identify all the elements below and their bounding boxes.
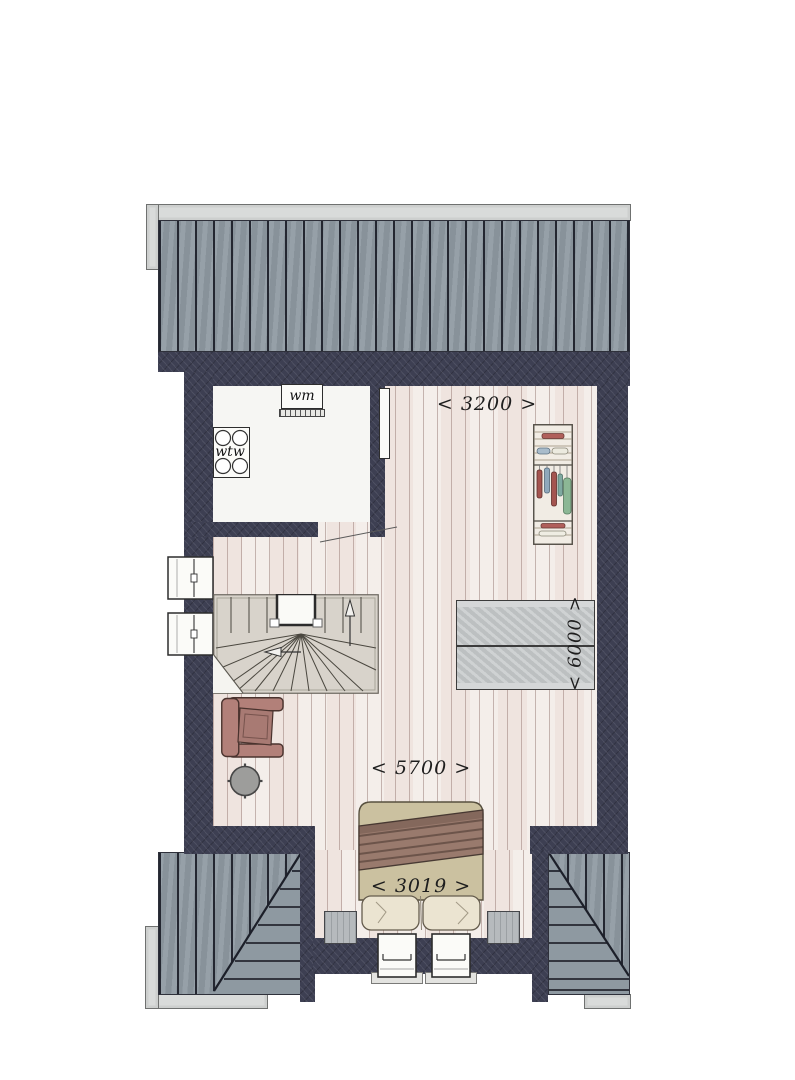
gutter-top [146, 204, 631, 221]
window-south-left [377, 933, 417, 978]
wardrobe-glyph [533, 424, 573, 545]
bed-pillow-right [423, 896, 480, 930]
stool-glyph [226, 762, 264, 800]
roof-bottom-right-hip [549, 853, 629, 994]
wall-top-left-notch [156, 372, 184, 386]
wardrobe [533, 424, 573, 545]
armchair-glyph [221, 697, 285, 759]
window-south-right [431, 933, 471, 978]
stairs [213, 594, 379, 694]
wall-technical-room-south [184, 522, 318, 537]
wall-niche-left [300, 850, 315, 1002]
dimension-room-width-top: < 3200 > [437, 393, 537, 415]
roof-top [158, 220, 630, 352]
dimension-room-depth: < 6000 > [565, 595, 586, 690]
stairs-glyph [213, 594, 379, 694]
wall-west [184, 372, 213, 832]
roof-bottom-right [548, 852, 630, 995]
window-south-left-glyph [377, 933, 417, 978]
dimension-total-width: < 5700 > [371, 757, 471, 779]
armchair [221, 697, 285, 759]
bed-glyph [356, 796, 486, 936]
door-leaf [379, 388, 390, 459]
floor-plan: wm wtw < 3200 > < 5700 > < 3019 > < 6000… [0, 0, 795, 1080]
window-west-lower-glyph [167, 612, 214, 656]
gutter-bottom-right [584, 994, 631, 1009]
door-swing-line [312, 522, 402, 544]
roof-bottom-left-hip [159, 853, 301, 994]
wall-east [597, 380, 628, 832]
stair-void [277, 594, 315, 625]
nightstand-right [487, 911, 520, 944]
window-west-upper-glyph [167, 556, 214, 600]
window-west-upper [167, 556, 214, 600]
dimension-bed-width: < 3019 > [371, 875, 471, 897]
washing-machine-label: wm [289, 388, 314, 404]
bed [356, 796, 486, 936]
heat-recovery-unit-label: wtw [215, 444, 245, 460]
roof-bottom-left [158, 852, 302, 995]
wall-top [158, 352, 630, 386]
wall-niche-right [532, 850, 548, 1002]
window-west-lower [167, 612, 214, 656]
window-south-right-glyph [431, 933, 471, 978]
gutter-bottom-left-side [145, 926, 159, 1009]
nightstand-left [324, 911, 357, 944]
stool [226, 762, 264, 800]
washing-machine-vent [279, 409, 325, 417]
bed-pillow-left [362, 896, 419, 930]
wall-band-bottom-left [184, 826, 315, 854]
